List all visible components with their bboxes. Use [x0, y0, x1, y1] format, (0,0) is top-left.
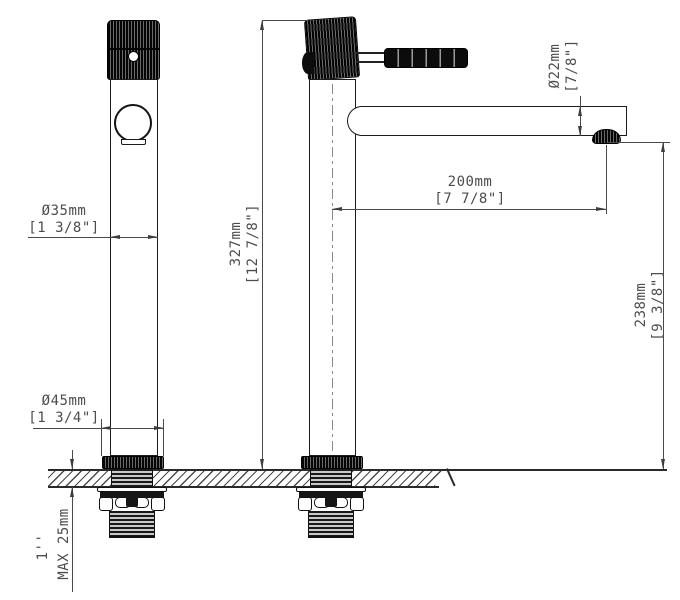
spout-reach-imperial: [7 7/8"]: [410, 191, 530, 208]
spout: [360, 106, 627, 136]
lever-stem-bottom-line: [356, 61, 386, 63]
spout-clearance-imperial: [9 3/8"]: [650, 255, 667, 355]
side-nut-wing-left: [298, 497, 312, 511]
dim-base-diameter-line: [33, 428, 164, 429]
spout-reach-label: 200mm [7 7/8"]: [410, 174, 530, 208]
front-deck-shank: [111, 469, 153, 487]
body-diameter-imperial: [1 3/8"]: [23, 220, 105, 237]
overall-height-label: 327mm [12 7/8"]: [228, 194, 262, 294]
front-cap-dot: [128, 51, 139, 62]
base-diameter-label: Ø45mm [1 3/4"]: [23, 393, 105, 427]
lever-stem-top-line: [356, 52, 386, 54]
dim-body-diameter-arrow-left: [110, 235, 120, 239]
front-threaded-tail: [109, 511, 155, 538]
spout-diameter-metric: Ø22mm: [547, 34, 564, 98]
side-base-flange: [301, 456, 363, 469]
overall-height-imperial: [12 7/8"]: [245, 194, 262, 294]
body-diameter-label: Ø35mm [1 3/8"]: [23, 203, 105, 237]
countertop-section: [48, 470, 443, 486]
countertop-cut-edge: [446, 468, 455, 486]
lever-grip: [384, 48, 468, 68]
dim-base-diameter-ext-right: [163, 419, 164, 456]
spout-clearance-label: 238mm [9 3/8"]: [633, 255, 667, 355]
dim-body-diameter-line: [28, 237, 158, 238]
base-diameter-imperial: [1 3/4"]: [23, 410, 105, 427]
base-diameter-metric: Ø45mm: [23, 393, 105, 410]
dim-overall-height-line: [262, 20, 263, 469]
dim-spout-reach-arrow-left: [332, 207, 342, 211]
side-body-centerline: [332, 84, 333, 452]
side-nut-wing-right: [350, 497, 364, 511]
technical-drawing-canvas: Ø35mm [1 3/8"] Ø45mm [1 3/4"] 327mm [12 …: [0, 0, 680, 600]
dim-spout-reach-arrow-right: [596, 207, 606, 211]
dim-spout-reach-ext-right: [606, 145, 607, 214]
front-nut-wing-left: [99, 497, 113, 511]
front-cap: [107, 20, 160, 80]
dim-deck-thickness-arrow-down: [70, 459, 74, 469]
dim-overall-height-arrow-top: [260, 20, 264, 30]
dim-spout-clearance-arrow-top: [661, 142, 665, 152]
front-base-flange: [102, 456, 164, 469]
dim-overall-height-arrow-bottom: [260, 459, 264, 469]
dim-body-diameter-arrow-right: [148, 235, 158, 239]
spout-reach-metric: 200mm: [410, 174, 530, 191]
deck-thread-size-label: 1'': [35, 532, 51, 562]
dim-spout-clearance-arrow-bottom: [661, 459, 665, 469]
side-threaded-tail: [308, 511, 354, 538]
dim-spout-reach-line: [332, 209, 606, 210]
side-deck-shank: [310, 469, 352, 487]
dim-deck-thickness-line-bottom: [72, 487, 73, 592]
front-nut-wing-right: [151, 497, 165, 511]
dim-overall-height-ext-top: [262, 20, 308, 21]
side-nut-center: [325, 494, 337, 507]
front-handle-collar: [121, 139, 146, 145]
dim-base-diameter-arrow-right: [154, 426, 164, 430]
spout-diameter-imperial: [7/8"]: [564, 34, 581, 98]
deck-thickness-max-label: MAX 25mm: [56, 494, 72, 594]
front-handle-knob: [114, 104, 152, 142]
dim-spout-diameter-arrow-top: [578, 106, 582, 116]
spout-clearance-metric: 238mm: [633, 255, 650, 355]
body-diameter-metric: Ø35mm: [23, 203, 105, 220]
front-nut-center: [126, 494, 138, 507]
overall-height-metric: 327mm: [228, 194, 245, 294]
side-cap-lip: [302, 52, 314, 74]
front-cap-groove: [108, 48, 159, 50]
spout-diameter-label: Ø22mm [7/8"]: [547, 34, 579, 98]
dim-spout-diameter-arrow-bottom: [578, 126, 582, 136]
